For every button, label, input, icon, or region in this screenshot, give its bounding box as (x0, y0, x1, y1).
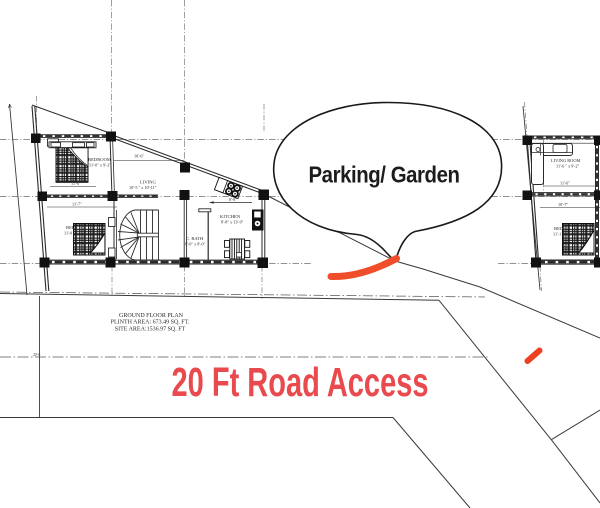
svg-text:10'-6": 10'-6" (134, 154, 144, 159)
svg-text:LIVING: LIVING (140, 180, 157, 185)
svg-text:BED: BED (554, 226, 564, 231)
svg-text:PLINTH AREA: 673.49 SQ. FT.: PLINTH AREA: 673.49 SQ. FT. (111, 320, 190, 326)
svg-text:8'-0" x 8'-0": 8'-0" x 8'-0" (185, 242, 206, 247)
svg-text:Parking/ Garden: Parking/ Garden (309, 162, 460, 188)
svg-text:8'-8" x 13'-9": 8'-8" x 13'-9" (221, 220, 244, 225)
svg-text:20 Ft Road Access: 20 Ft Road Access (172, 359, 429, 405)
svg-text:BEDROOM: BEDROOM (88, 157, 111, 162)
svg-text:11'-1: 11'-1 (553, 232, 561, 237)
svg-text:KITCHEN: KITCHEN (220, 214, 241, 219)
svg-text:11'-7": 11'-7" (72, 202, 82, 207)
svg-text:11'-0: 11'-0 (64, 231, 72, 236)
svg-text:10'-7": 10'-7" (558, 202, 568, 207)
svg-text:10'-5 " x 10'-11": 10'-5 " x 10'-11" (129, 185, 157, 190)
svg-text:GROUND FLOOR PLAN: GROUND FLOOR PLAN (119, 313, 184, 319)
svg-text:11'-6": 11'-6" (560, 181, 570, 186)
svg-text:11'-6 " x 9'-2": 11'-6 " x 9'-2" (556, 164, 580, 169)
svg-text:LIVING ROOM: LIVING ROOM (551, 158, 580, 163)
svg-text:BED: BED (66, 225, 76, 230)
svg-text:11'-0": 11'-0" (71, 181, 81, 186)
svg-text:11'-0" x 9'-2": 11'-0" x 9'-2" (89, 163, 112, 168)
svg-text:C. BATH: C. BATH (186, 236, 204, 241)
svg-text:SITE AREA:1536.97 SQ. FT: SITE AREA:1536.97 SQ. FT (115, 326, 186, 332)
